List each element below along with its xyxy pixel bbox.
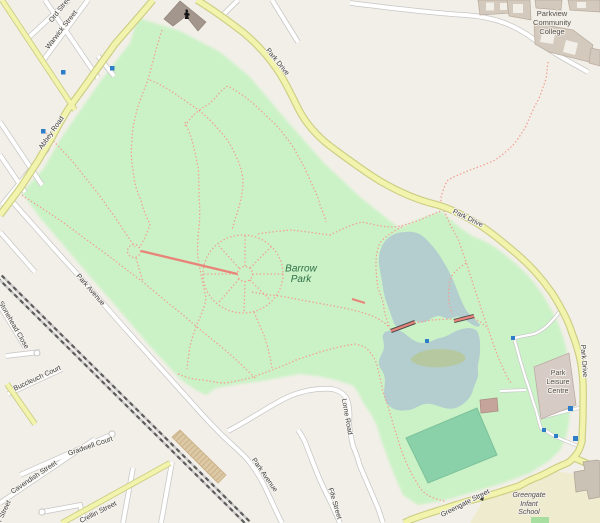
svg-text:Barrow: Barrow: [285, 264, 317, 275]
svg-text:Park: Park: [551, 370, 566, 377]
svg-text:Infant: Infant: [520, 501, 539, 508]
svg-text:Greengate: Greengate: [512, 492, 545, 499]
svg-text:Community: Community: [533, 18, 571, 27]
svg-text:Leisure: Leisure: [547, 379, 570, 386]
svg-text:School: School: [518, 509, 540, 516]
svg-text:College: College: [539, 27, 564, 36]
svg-text:Park: Park: [291, 274, 313, 285]
svg-text:Centre: Centre: [547, 388, 568, 395]
svg-text:Parkview: Parkview: [537, 9, 568, 18]
